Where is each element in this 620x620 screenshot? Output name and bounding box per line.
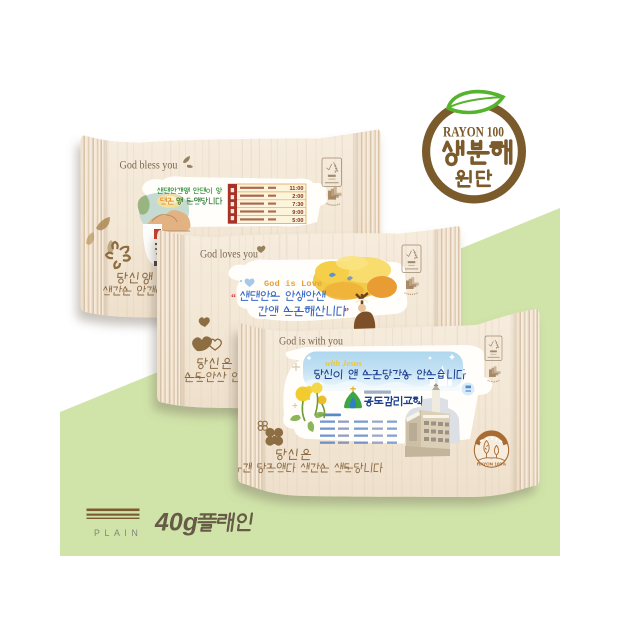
svg-text:7:30: 7:30: [292, 202, 303, 208]
svg-text:“: “: [231, 293, 236, 304]
svg-text:God is with you: God is with you: [279, 336, 343, 348]
svg-text:11:00: 11:00: [290, 186, 304, 192]
svg-text:God bless you: God bless you: [120, 160, 178, 172]
svg-text:with Jesus: with Jesus: [325, 358, 362, 368]
svg-text:40g: 40g: [154, 509, 198, 537]
svg-text:God loves you: God loves you: [200, 249, 258, 261]
svg-text:”: ”: [344, 307, 349, 318]
svg-text:PLAIN: PLAIN: [94, 528, 142, 538]
svg-text:2:00: 2:00: [292, 194, 303, 200]
svg-text:RAYON 100: RAYON 100: [443, 125, 504, 141]
svg-text:9:00: 9:00: [292, 210, 303, 216]
svg-text:RAYON 100%: RAYON 100%: [477, 462, 506, 467]
svg-text:God is Love: God is Love: [264, 279, 322, 289]
svg-text:5:00: 5:00: [292, 218, 303, 224]
